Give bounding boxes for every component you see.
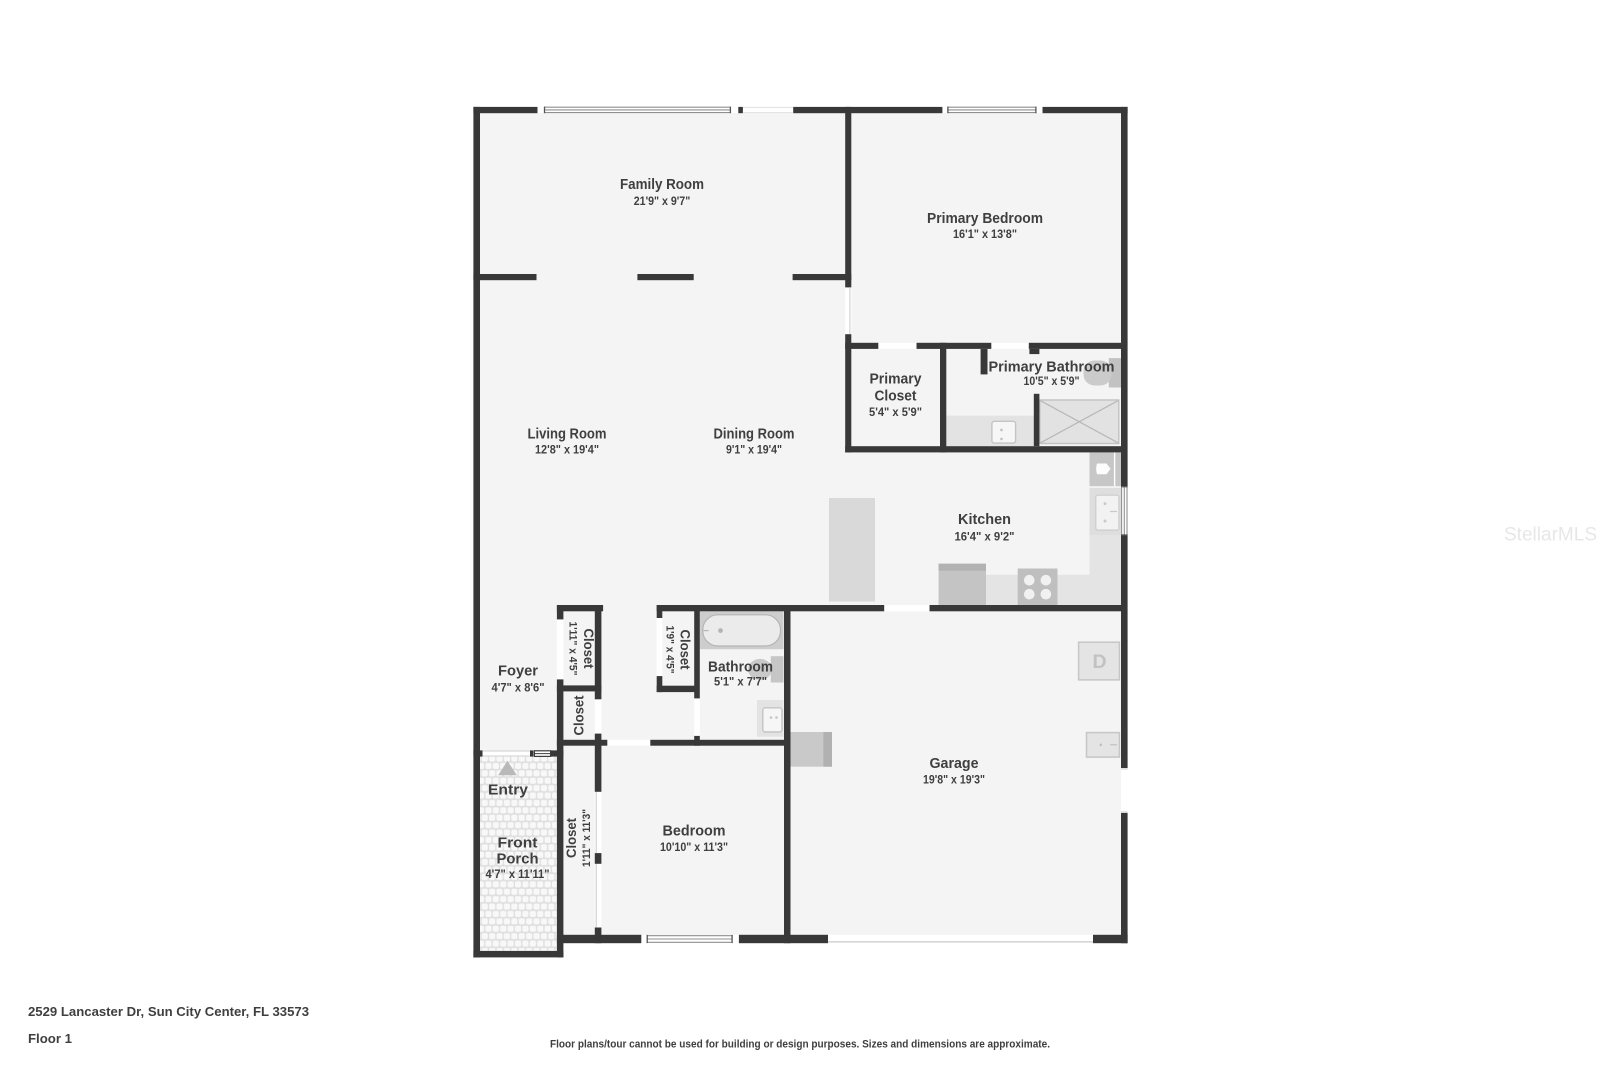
svg-text:12'8" x 19'4": 12'8" x 19'4" [535, 443, 599, 457]
svg-text:2529 Lancaster Dr, Sun City Ce: 2529 Lancaster Dr, Sun City Center, FL 3… [28, 1004, 309, 1019]
svg-text:Closet: Closet [564, 818, 579, 858]
svg-text:Primary Bedroom: Primary Bedroom [927, 211, 1043, 227]
svg-text:5'4" x 5'9": 5'4" x 5'9" [869, 405, 922, 419]
svg-text:D: D [1092, 651, 1106, 673]
svg-text:Closet: Closet [572, 695, 587, 735]
svg-text:1'11" x 4'5": 1'11" x 4'5" [567, 622, 579, 676]
svg-text:Closet: Closet [678, 630, 693, 670]
svg-text:4'7" x 8'6": 4'7" x 8'6" [492, 681, 545, 695]
svg-text:19'8" x 19'3": 19'8" x 19'3" [923, 773, 985, 787]
svg-text:Kitchen: Kitchen [958, 512, 1011, 528]
svg-text:16'4" x 9'2": 16'4" x 9'2" [955, 530, 1015, 544]
svg-text:StellarMLS: StellarMLS [1504, 525, 1597, 546]
svg-text:1'9" x 4'5": 1'9" x 4'5" [664, 626, 676, 674]
svg-text:21'9" x 9'7": 21'9" x 9'7" [634, 194, 691, 208]
svg-text:Front: Front [498, 836, 538, 852]
svg-text:Garage: Garage [930, 756, 979, 772]
svg-text:Porch: Porch [497, 852, 539, 868]
svg-text:Primary: Primary [870, 372, 922, 388]
svg-text:10'5" x 5'9": 10'5" x 5'9" [1024, 374, 1080, 388]
svg-text:5'1" x 7'7": 5'1" x 7'7" [714, 675, 767, 689]
svg-text:Entry: Entry [488, 783, 528, 799]
svg-text:10'10" x 11'3": 10'10" x 11'3" [660, 840, 728, 854]
svg-text:16'1" x 13'8": 16'1" x 13'8" [953, 227, 1017, 241]
svg-text:Bedroom: Bedroom [663, 824, 726, 840]
svg-text:Floor plans/tour cannot be use: Floor plans/tour cannot be used for buil… [550, 1039, 1050, 1051]
svg-text:Floor 1: Floor 1 [28, 1031, 72, 1046]
svg-text:Foyer: Foyer [498, 664, 538, 680]
svg-text:Closet: Closet [875, 389, 917, 405]
svg-text:Family Room: Family Room [620, 177, 704, 193]
svg-text:Living Room: Living Room [528, 427, 607, 443]
svg-text:9'1" x 19'4": 9'1" x 19'4" [726, 443, 782, 457]
svg-text:4'7" x 11'11": 4'7" x 11'11" [486, 867, 550, 881]
svg-text:1'11" x 11'3": 1'11" x 11'3" [581, 809, 593, 867]
svg-text:Closet: Closet [581, 629, 596, 669]
svg-text:Dining Room: Dining Room [714, 427, 795, 443]
svg-text:Bathroom: Bathroom [708, 660, 773, 676]
